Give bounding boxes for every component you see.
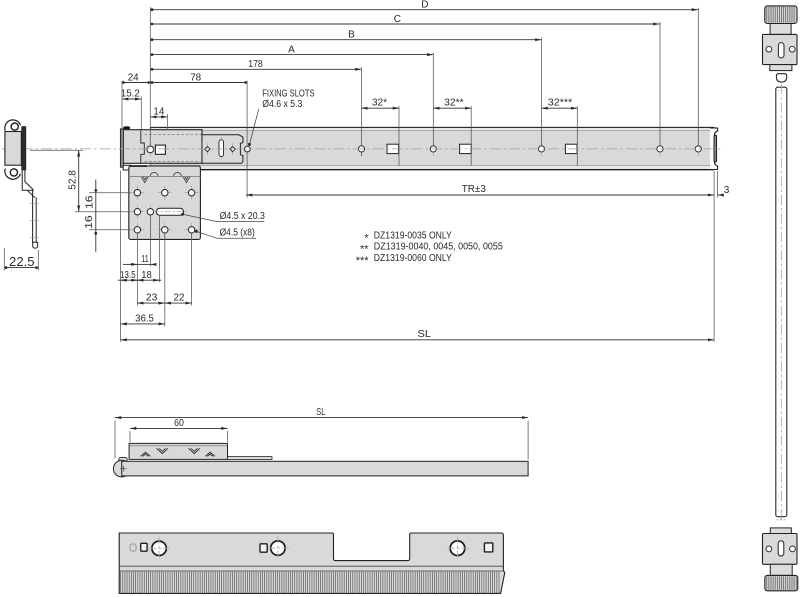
svg-text:B: B	[348, 30, 355, 41]
svg-text:Ø4.5 x 20.3: Ø4.5 x 20.3	[220, 211, 266, 222]
svg-text:C: C	[394, 14, 401, 25]
svg-text:3: 3	[724, 185, 730, 196]
svg-text:Ø4.5 (x8): Ø4.5 (x8)	[220, 228, 255, 239]
svg-text:24: 24	[128, 72, 139, 83]
svg-text:178: 178	[248, 59, 263, 70]
svg-text:32*: 32*	[372, 97, 387, 108]
svg-text:14: 14	[153, 107, 164, 118]
svg-text:11: 11	[141, 254, 149, 265]
svg-text:Ø4.6 x 5.3: Ø4.6 x 5.3	[262, 99, 302, 110]
svg-text:18: 18	[141, 270, 152, 281]
svg-text:A: A	[288, 45, 295, 56]
svg-text:13.5: 13.5	[120, 270, 136, 281]
svg-text:SL: SL	[418, 329, 432, 340]
svg-text:D: D	[421, 0, 428, 10]
svg-text:16: 16	[84, 195, 95, 209]
svg-text:36.5: 36.5	[135, 313, 154, 324]
svg-text:16: 16	[84, 215, 95, 229]
svg-text:15.2: 15.2	[121, 89, 140, 100]
svg-text:TR±3: TR±3	[462, 184, 486, 195]
svg-text:22.5: 22.5	[9, 255, 35, 269]
svg-text:***: ***	[356, 255, 370, 267]
svg-text:DZ1319-0040, 0045, 0050, 0055: DZ1319-0040, 0045, 0050, 0055	[374, 242, 503, 253]
svg-text:32***: 32***	[548, 97, 573, 108]
svg-text:52.8: 52.8	[68, 170, 79, 190]
svg-text:SL: SL	[316, 407, 325, 418]
svg-text:DZ1319-0060 ONLY: DZ1319-0060 ONLY	[374, 253, 452, 264]
svg-text:32**: 32**	[444, 97, 464, 108]
svg-text:**: **	[360, 244, 369, 256]
svg-text:*: *	[364, 232, 369, 244]
svg-text:60: 60	[174, 418, 184, 429]
svg-text:23: 23	[146, 293, 158, 304]
svg-text:DZ1319-0035 ONLY: DZ1319-0035 ONLY	[374, 230, 452, 241]
svg-text:78: 78	[190, 72, 201, 83]
svg-text:22: 22	[174, 293, 185, 304]
